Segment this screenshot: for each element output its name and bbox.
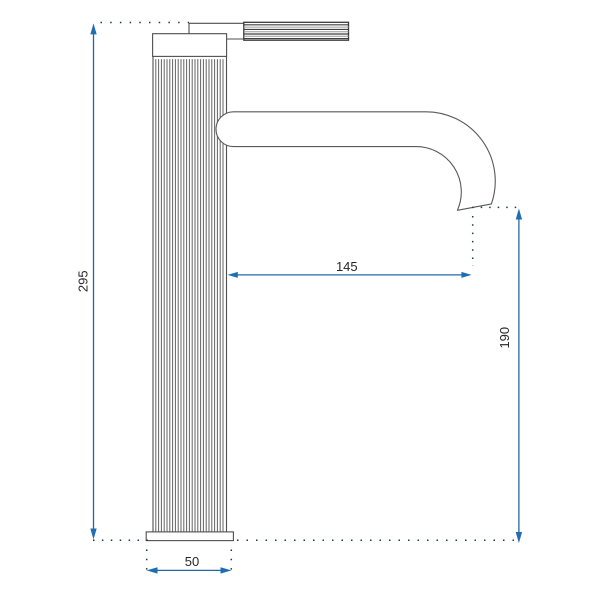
svg-text:295: 295 <box>75 270 90 292</box>
svg-text:50: 50 <box>185 554 199 569</box>
svg-text:190: 190 <box>497 327 512 349</box>
svg-text:145: 145 <box>336 259 358 274</box>
